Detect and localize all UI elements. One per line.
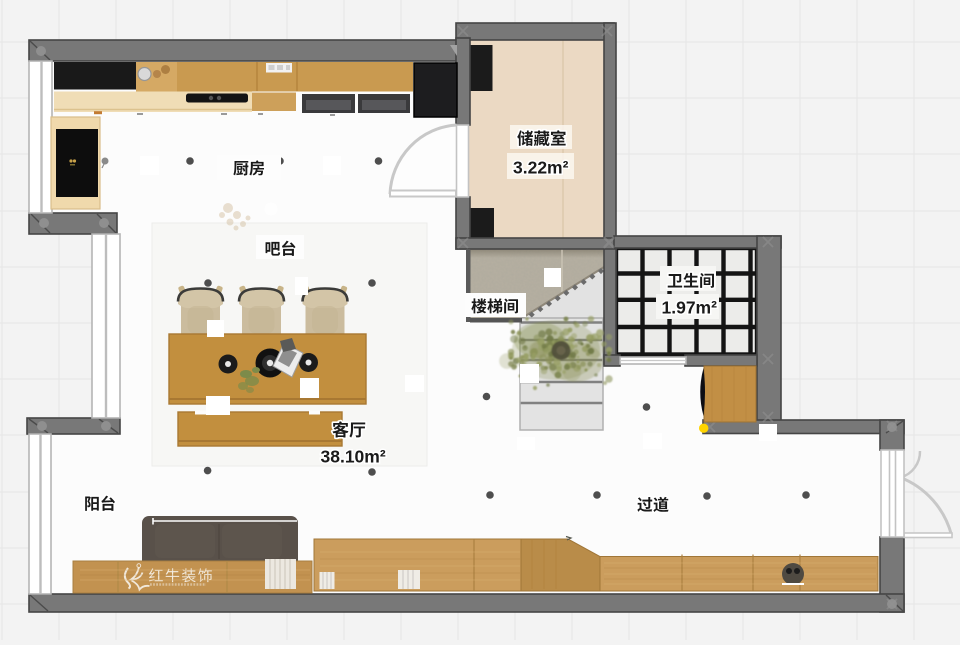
svg-text:1.97m²: 1.97m² (662, 298, 718, 318)
svg-text:38.10m²: 38.10m² (321, 447, 386, 467)
svg-text:3.22m²: 3.22m² (513, 158, 569, 178)
